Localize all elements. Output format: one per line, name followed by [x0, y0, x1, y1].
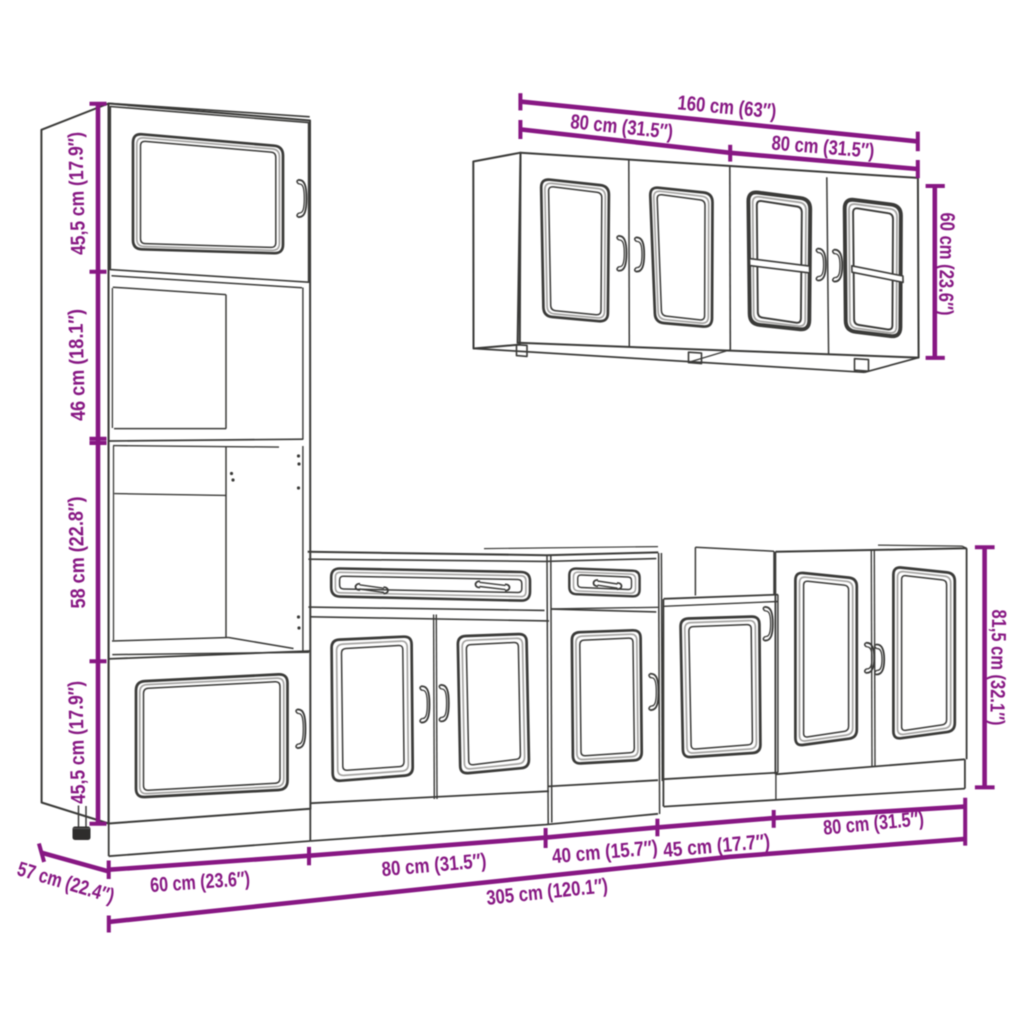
svg-text:46 cm (18.1″): 46 cm (18.1″) — [64, 309, 90, 422]
svg-text:60 cm (23.6″): 60 cm (23.6″) — [934, 212, 959, 315]
svg-text:58 cm (22.8″): 58 cm (22.8″) — [64, 496, 90, 609]
svg-text:81,5 cm (32.1″): 81,5 cm (32.1″) — [985, 609, 1010, 725]
svg-text:45,5 cm (17.9″): 45,5 cm (17.9″) — [64, 681, 90, 805]
svg-text:45,5 cm (17.9″): 45,5 cm (17.9″) — [64, 132, 90, 256]
